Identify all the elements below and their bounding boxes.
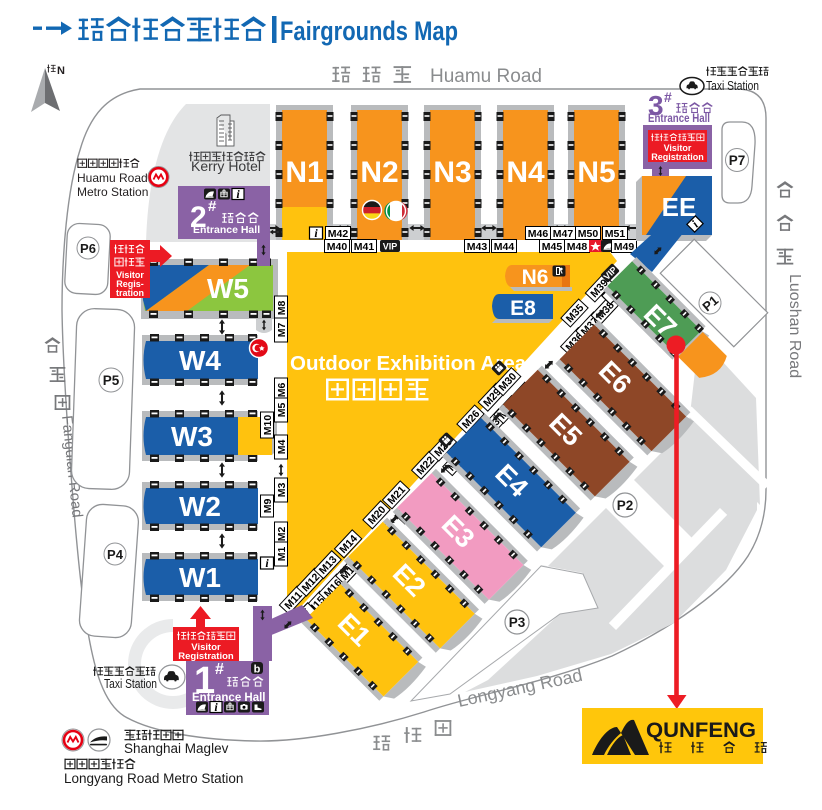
- svg-text:P4: P4: [107, 547, 124, 562]
- svg-text:N2: N2: [360, 156, 398, 189]
- svg-text:#: #: [664, 89, 672, 105]
- svg-text:M40: M40: [327, 241, 348, 253]
- svg-text:E8: E8: [510, 297, 536, 320]
- svg-text:M4: M4: [276, 440, 288, 455]
- svg-text:Huamu Road: Huamu Road: [77, 171, 148, 185]
- svg-text:Taxi Station: Taxi Station: [104, 677, 157, 691]
- svg-text:P5: P5: [103, 373, 120, 388]
- svg-text:b: b: [254, 664, 261, 676]
- svg-text:M1: M1: [276, 547, 288, 562]
- svg-text:M2: M2: [276, 527, 288, 542]
- svg-text:M8: M8: [276, 301, 288, 316]
- svg-text:#: #: [215, 661, 224, 678]
- svg-text:EE: EE: [662, 192, 697, 222]
- svg-text:W1: W1: [179, 562, 221, 593]
- svg-text:Kerry Hotel: Kerry Hotel: [191, 158, 261, 174]
- svg-text:W5: W5: [207, 273, 249, 304]
- svg-text:W4: W4: [179, 345, 221, 376]
- svg-text:M47: M47: [553, 228, 574, 240]
- svg-text:M49: M49: [614, 241, 635, 253]
- svg-text:N5: N5: [577, 156, 615, 189]
- svg-text:Metro Station: Metro Station: [77, 185, 148, 199]
- svg-text:P6: P6: [80, 241, 96, 256]
- svg-text:P3: P3: [509, 615, 526, 630]
- svg-text:M7: M7: [276, 323, 288, 338]
- svg-text:Outdoor Exhibition Area: Outdoor Exhibition Area: [290, 352, 527, 375]
- svg-text:N1: N1: [285, 156, 323, 189]
- svg-text:M6: M6: [276, 383, 288, 398]
- svg-text:M10: M10: [262, 415, 274, 436]
- svg-text:VIP: VIP: [383, 241, 398, 251]
- svg-text:N: N: [57, 65, 65, 77]
- svg-text:N6: N6: [522, 266, 549, 289]
- svg-text:N4: N4: [506, 156, 545, 189]
- svg-text:#: #: [208, 198, 217, 215]
- svg-text:Taxi Station: Taxi Station: [706, 79, 759, 93]
- svg-text:M41: M41: [354, 241, 375, 253]
- svg-text:M43: M43: [467, 241, 488, 253]
- svg-text:M44: M44: [494, 241, 515, 253]
- svg-text:M48: M48: [567, 241, 588, 253]
- svg-text:Longyang Road Metro Station: Longyang Road Metro Station: [64, 771, 243, 786]
- svg-text:W3: W3: [171, 421, 213, 452]
- svg-text:Shanghai Maglev: Shanghai Maglev: [124, 741, 229, 756]
- svg-text:N3: N3: [433, 156, 471, 189]
- svg-text:M3: M3: [276, 483, 288, 498]
- svg-text:M46: M46: [528, 228, 549, 240]
- svg-text:QUNFENG: QUNFENG: [646, 719, 756, 742]
- svg-text:M45: M45: [542, 241, 563, 253]
- svg-text:W2: W2: [179, 491, 221, 522]
- svg-text:M9: M9: [262, 499, 274, 514]
- svg-text:M50: M50: [578, 228, 599, 240]
- svg-text:Luoshan Road: Luoshan Road: [786, 274, 803, 378]
- svg-text:M42: M42: [328, 228, 349, 240]
- svg-text:M5: M5: [276, 403, 288, 418]
- svg-text:P2: P2: [617, 498, 634, 513]
- svg-text:Registration: Registration: [651, 152, 704, 162]
- svg-text:Entrance Hall: Entrance Hall: [193, 224, 260, 236]
- svg-text:Fairgrounds Map: Fairgrounds Map: [280, 16, 458, 46]
- svg-text:P7: P7: [729, 153, 746, 168]
- svg-text:Huamu Road: Huamu Road: [430, 66, 542, 87]
- svg-text:tration: tration: [116, 288, 144, 298]
- svg-text:M51: M51: [605, 228, 626, 240]
- svg-text:Entrance Hall: Entrance Hall: [648, 111, 710, 125]
